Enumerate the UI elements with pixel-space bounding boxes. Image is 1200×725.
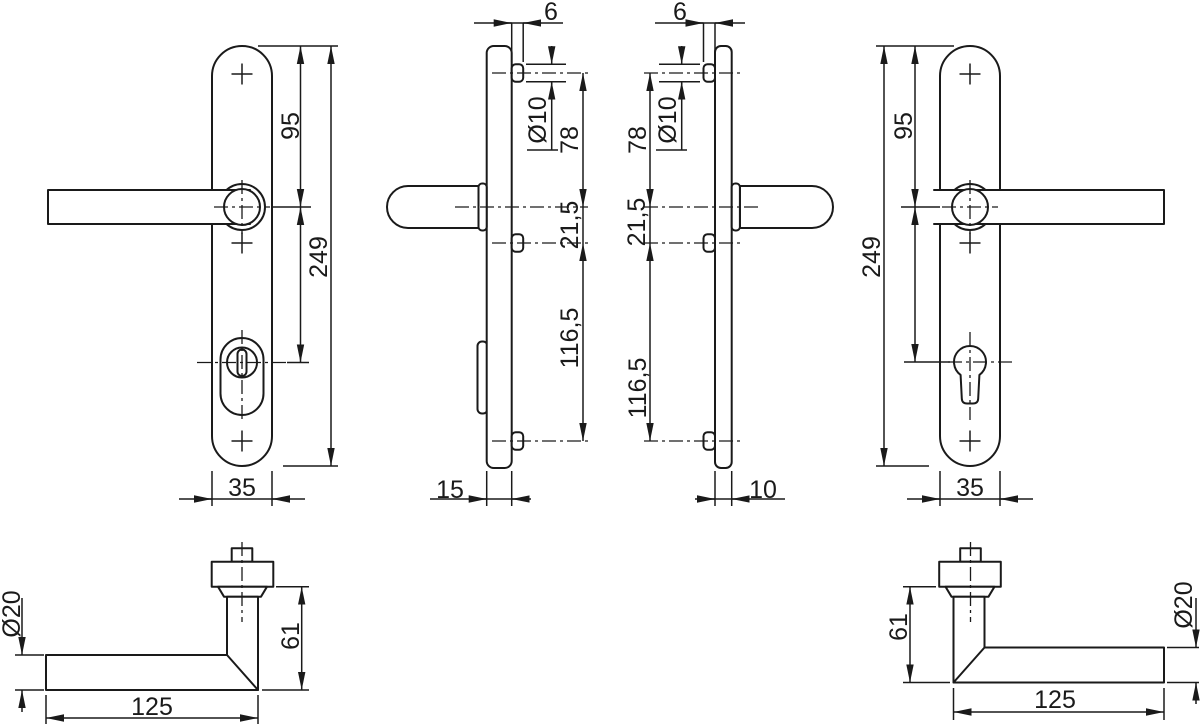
dim-21-5-label: 21,5 (556, 201, 584, 250)
dim-35-label: 35 (228, 474, 256, 502)
lever-grip-top-view (954, 597, 1165, 683)
dim-61-label: 61 (885, 613, 913, 641)
dim-6-label: 6 (673, 0, 687, 26)
lever-grip-top-view (46, 597, 258, 690)
dim-116-5-label: 116,5 (556, 308, 584, 369)
plate-profile-inner (487, 46, 512, 468)
side-view-outer: 6 Ø10 78 21,5 116,5 10 (623, 0, 833, 506)
side-view-inner: 6 Ø10 78 21,5 116,5 15 (387, 0, 588, 506)
dim-125-label: 125 (131, 693, 173, 721)
technical-drawing: 95 249 35 6 Ø10 (0, 0, 1200, 725)
dim-15-label: 15 (436, 476, 464, 504)
dim-d10-label: Ø10 (654, 96, 682, 143)
dim-125-label: 125 (1034, 686, 1076, 714)
dim-10-label: 10 (749, 476, 777, 504)
front-view-left: 95 249 35 (48, 46, 338, 506)
dim-95-label: 95 (890, 112, 918, 140)
dim-35-label: 35 (956, 474, 984, 502)
dim-249-label: 249 (858, 236, 886, 278)
drawing-svg: 95 249 35 6 Ø10 (0, 0, 1200, 725)
dim-d20-label: Ø20 (1170, 581, 1198, 628)
dim-d20-label: Ø20 (0, 590, 26, 637)
dim-116-5-label: 116,5 (624, 358, 652, 419)
dim-78-label: 78 (624, 126, 652, 154)
dim-6-label: 6 (544, 0, 558, 26)
dim-61-label: 61 (277, 622, 305, 650)
dim-21-5-label: 21,5 (623, 198, 651, 247)
dim-78-label: 78 (556, 126, 584, 154)
lever-top-view-right: Ø20 61 125 (885, 542, 1199, 720)
dim-d10-label: Ø10 (524, 96, 552, 143)
front-view-right: 95 249 35 (858, 46, 1164, 506)
dim-249-label: 249 (305, 236, 333, 278)
lever-top-view-left: Ø20 61 125 (0, 542, 309, 724)
plate-profile-outer (715, 46, 732, 468)
dim-95-label: 95 (277, 112, 305, 140)
